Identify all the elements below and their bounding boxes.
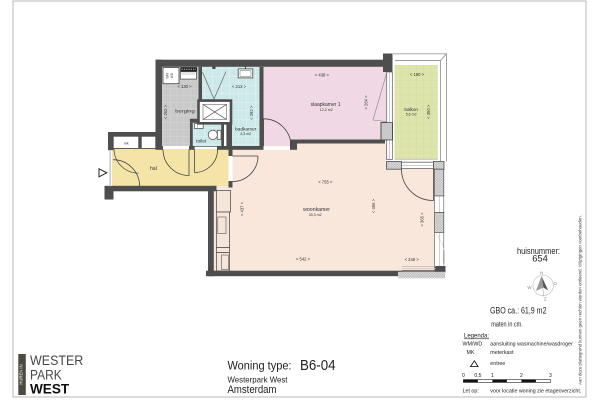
svg-text:0,5: 0,5	[474, 373, 481, 379]
svg-text:Amsterdam: Amsterdam	[228, 384, 277, 396]
svg-text:HUREN IN: HUREN IN	[19, 364, 24, 384]
svg-text:1: 1	[491, 373, 494, 379]
svg-text:< 292 >: < 292 >	[249, 105, 254, 120]
svg-text:< 248 >: < 248 >	[405, 257, 420, 262]
svg-text:< 437 >: < 437 >	[240, 201, 245, 216]
svg-text:12,2 m2: 12,2 m2	[320, 108, 333, 112]
svg-text:Let op:: Let op:	[463, 389, 479, 395]
svg-text:woonkamer: woonkamer	[303, 207, 330, 213]
svg-text:WEST: WEST	[30, 380, 70, 396]
svg-text:< 160 >: < 160 >	[410, 72, 425, 77]
svg-text:< 130 >: < 130 >	[177, 84, 192, 89]
svg-text:WM: WM	[166, 72, 170, 78]
svg-text:balkon: balkon	[404, 107, 418, 112]
svg-text:hal: hal	[150, 166, 157, 172]
svg-text:maten in cm.: maten in cm.	[491, 322, 523, 329]
svg-text:4,3 m2: 4,3 m2	[240, 132, 251, 136]
svg-text:meterkast: meterkast	[490, 350, 514, 356]
svg-text:aansluiting wasmachine/wasdrog: aansluiting wasmachine/wasdroger	[490, 342, 573, 348]
svg-text:Westerpark West: Westerpark West	[228, 375, 289, 385]
svg-text:< 438 >: < 438 >	[315, 73, 330, 78]
svg-text:0: 0	[462, 373, 465, 379]
svg-text:O: O	[553, 281, 557, 286]
svg-text:< 365 >: < 365 >	[420, 212, 425, 227]
svg-text:654: 654	[532, 254, 548, 264]
svg-text:Z: Z	[544, 297, 547, 302]
svg-text:Aan deze plattegrond kunnen ge: Aan deze plattegrond kunnen geen rechten…	[578, 215, 583, 385]
svg-text:mk: mk	[124, 141, 129, 145]
svg-text:B6-04: B6-04	[300, 358, 336, 374]
svg-text:3: 3	[549, 373, 552, 379]
svg-text:< 755 >: < 755 >	[318, 180, 333, 185]
svg-text:WM/WD: WM/WD	[463, 342, 483, 348]
svg-text:< 264 >: < 264 >	[364, 95, 369, 110]
svg-text:33,3 m2: 33,3 m2	[309, 213, 322, 217]
svg-text:GBO ca.: 61,9 m2: GBO ca.: 61,9 m2	[490, 306, 547, 316]
svg-text:< 262 >: < 262 >	[163, 104, 168, 119]
svg-text:MK: MK	[467, 350, 475, 356]
svg-text:< 542 >: < 542 >	[296, 257, 311, 262]
svg-text:N: N	[540, 271, 543, 276]
svg-text:toilet: toilet	[196, 139, 207, 145]
svg-text:2: 2	[520, 373, 523, 379]
svg-text:entree: entree	[490, 361, 505, 367]
svg-text:< 466 >: < 466 >	[371, 198, 376, 213]
svg-text:< 213 >: < 213 >	[232, 84, 247, 89]
svg-text:< 350 >: < 350 >	[426, 104, 431, 119]
svg-text:WD: WD	[170, 72, 174, 78]
svg-text:5,6 m2: 5,6 m2	[406, 113, 417, 117]
svg-text:voor locatie woning zie etageo: voor locatie woning zie etageoverzicht.	[490, 389, 581, 395]
svg-text:berging: berging	[175, 108, 195, 113]
svg-text:Woning type:: Woning type:	[228, 361, 292, 373]
svg-text:Legenda:: Legenda:	[464, 334, 489, 340]
